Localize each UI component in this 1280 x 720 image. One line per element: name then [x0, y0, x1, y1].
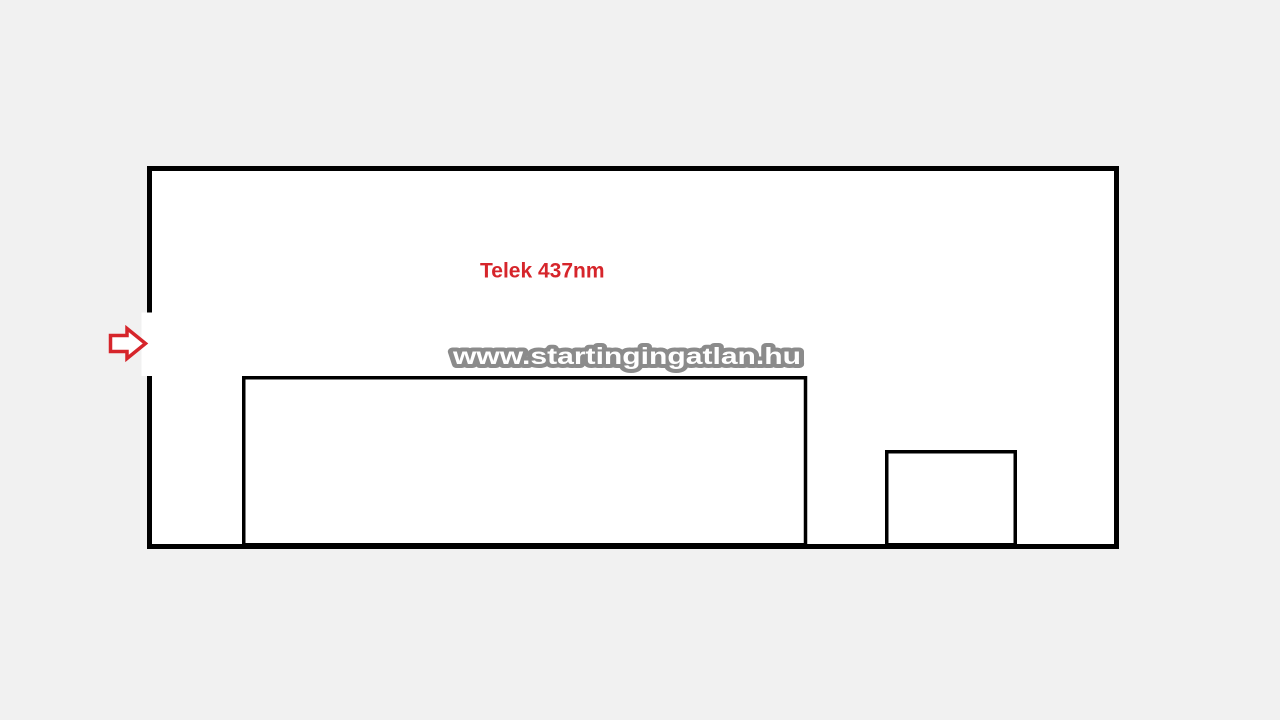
svg-text:Telek 437nm: Telek 437nm	[480, 260, 605, 283]
svg-text:www.startingingatlan.hu: www.startingingatlan.hu	[452, 343, 801, 369]
